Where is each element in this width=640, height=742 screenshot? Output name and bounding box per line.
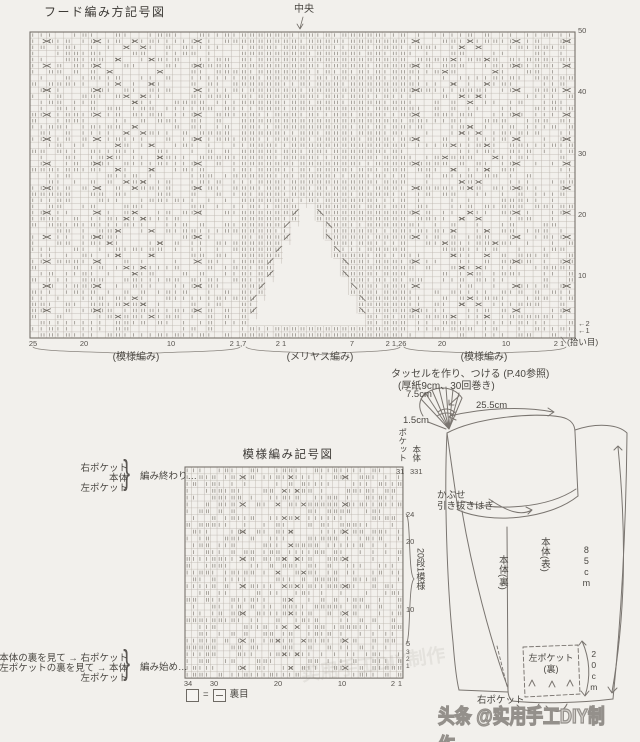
pattern-row-number: 1 [406,663,410,670]
pattern-col-number: 20 [274,680,282,689]
pattern-col-number: 1 [398,680,402,689]
hood-col-number: 7 [350,340,354,349]
knitting-pattern-scan: フード編み方記号図 中央 (拾い目) タッセルを作り、つける (P.40参照) … [0,0,640,742]
hood-col-number: 20 [80,340,88,349]
pattern-top-label: 本体 [411,445,421,462]
pickup-label: (拾い目) [567,338,598,348]
pattern-col-number: 2 [391,680,395,689]
schematic-label-7: 85cm [581,545,591,589]
hood-row-number: 20 [578,211,586,220]
repeat-label: 20段1模様 [415,548,425,590]
hood-col-number: 2 1 [276,340,286,349]
schematic-label-4: 引き抜きはぎ [437,502,494,513]
pattern-top-number: 331 [410,468,423,477]
section-label-1: (メリヤス編み) [287,352,354,364]
hood-row-number: ←1 [578,327,590,336]
center-label: 中央 [294,4,314,16]
hood-col-number: 10 [167,340,175,349]
legend-equals: = [203,690,209,701]
pattern-col-number: 34 [184,680,192,689]
pattern-top-number: 31 [396,468,404,477]
section-label-0: (模様編み) [113,352,160,364]
hood-col-number: 25 [29,340,37,349]
schematic-label-9: (裏) [544,664,559,674]
section-label-2: (模様編み) [461,352,508,364]
legend-empty-square-icon [186,689,199,702]
legend-purl-square-icon [213,689,226,702]
hood-row-number: 30 [578,150,586,159]
schematic-label-0: 7.5cm [406,390,432,401]
pattern-col-number: 10 [338,680,346,689]
hood-col-number: 20 [438,340,446,349]
schematic-label-1: 1.5cm [403,416,429,427]
legend-label: 裏目 [230,690,249,701]
hood-row-number: 50 [578,27,586,36]
legend: = 裏目 [186,689,249,702]
pattern-row-number: 24 [406,511,414,520]
end-block-item: 左ポケット [80,484,128,495]
schematic-label-6: 本体(表) [538,537,549,572]
hood-col-number: 2 1,26 [386,340,407,349]
hood-col-number: 2 1,7 [230,340,247,349]
pattern-top-label: ポケット [397,428,407,462]
hood-row-number: 40 [578,88,586,97]
hood-col-number: 10 [502,340,510,349]
hood-row-number: 10 [578,272,586,281]
schematic-label-11: 右ポケット [477,696,525,707]
start-block-item: 左ポケット [80,674,128,685]
start-caption: 編み始め… [140,663,188,674]
pattern-row-number: 20 [406,538,414,547]
pattern-col-number: 30 [210,680,218,689]
pattern-chart-title: 模様編み記号図 [243,449,334,462]
schematic-label-10: 20cm [588,649,598,693]
schematic-label-5: 本体(裏) [496,555,507,590]
tassel-note-line1: タッセルを作り、つける (P.40参照) [391,369,549,381]
hood-chart-title: フード編み方記号図 [44,6,166,20]
pattern-row-number: 10 [406,606,414,615]
schematic-label-2: 25.5cm [476,401,507,412]
schematic-label-8: 左ポケット [528,653,573,663]
hood-col-number: 2 1 [554,340,564,349]
pattern-row-number: 5 [406,640,410,649]
end-caption: 編み終わり… [140,472,197,483]
